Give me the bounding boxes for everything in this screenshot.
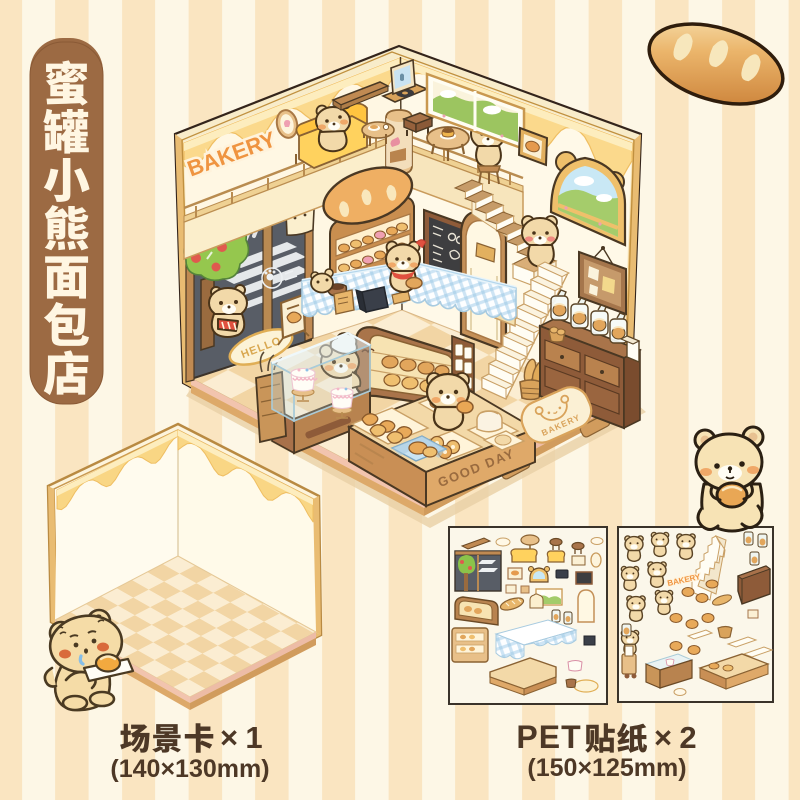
- svg-text:×: ×: [220, 720, 238, 755]
- svg-text:PET: PET: [516, 719, 581, 755]
- svg-text:1: 1: [245, 720, 262, 755]
- svg-text:2: 2: [679, 720, 696, 755]
- svg-text:×: ×: [654, 720, 672, 755]
- svg-text:(150×125mm): (150×125mm): [527, 754, 686, 782]
- svg-text:(140×130mm): (140×130mm): [110, 755, 269, 783]
